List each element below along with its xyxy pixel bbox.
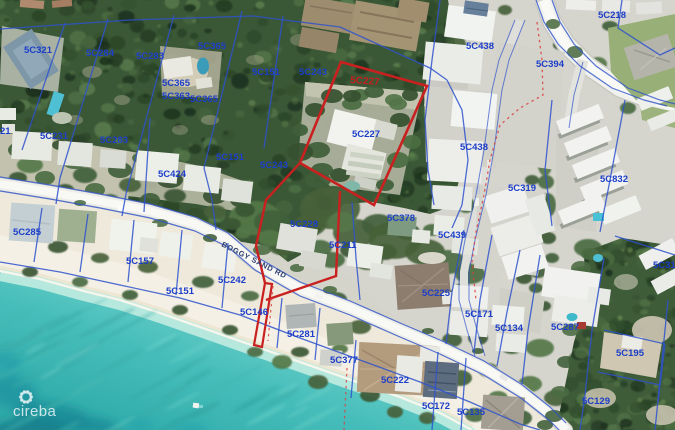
svg-text:5C283: 5C283	[136, 51, 164, 62]
svg-text:5C319: 5C319	[508, 183, 536, 194]
svg-text:5C311: 5C311	[653, 260, 675, 271]
svg-text:cireba: cireba	[13, 403, 57, 420]
svg-text:5C377: 5C377	[330, 355, 358, 366]
svg-text:5C242: 5C242	[218, 275, 246, 286]
svg-text:5C171: 5C171	[465, 309, 494, 320]
svg-text:5C365: 5C365	[198, 41, 227, 52]
svg-text:5C284: 5C284	[86, 48, 115, 59]
svg-text:5C157: 5C157	[126, 256, 154, 267]
svg-text:5C135: 5C135	[457, 407, 486, 418]
svg-text:5C365: 5C365	[162, 78, 191, 89]
svg-text:5C227: 5C227	[350, 75, 381, 88]
svg-text:5C151: 5C151	[252, 67, 281, 78]
svg-text:5C394: 5C394	[536, 59, 565, 70]
svg-text:5C832: 5C832	[600, 174, 628, 185]
svg-text:5C243: 5C243	[299, 67, 327, 78]
svg-text:5C231: 5C231	[40, 131, 69, 142]
svg-text:5C129: 5C129	[582, 396, 610, 407]
svg-text:5C321: 5C321	[24, 45, 53, 56]
svg-text:5C424: 5C424	[158, 169, 187, 180]
svg-text:5C365: 5C365	[190, 94, 219, 105]
svg-text:5C146: 5C146	[240, 307, 268, 318]
svg-text:5C281: 5C281	[287, 329, 316, 340]
svg-text:5C287: 5C287	[551, 322, 579, 333]
svg-text:5C285: 5C285	[13, 227, 42, 238]
svg-text:5C439: 5C439	[438, 230, 466, 241]
svg-text:5C134: 5C134	[495, 323, 524, 334]
svg-text:5C195: 5C195	[616, 348, 645, 359]
svg-text:5C243: 5C243	[260, 160, 288, 171]
svg-text:5C438: 5C438	[460, 142, 488, 153]
svg-text:5C151: 5C151	[216, 152, 245, 163]
svg-text:5C378: 5C378	[387, 213, 415, 224]
svg-text:5C283: 5C283	[100, 135, 128, 146]
svg-text:5C218: 5C218	[598, 10, 626, 21]
svg-text:5C228: 5C228	[290, 219, 318, 230]
svg-text:5C438: 5C438	[466, 41, 494, 52]
svg-text:5C227: 5C227	[352, 129, 380, 140]
svg-text:21: 21	[0, 126, 11, 137]
svg-text:5C211: 5C211	[329, 240, 357, 251]
svg-text:5C363: 5C363	[162, 91, 190, 102]
svg-text:5C222: 5C222	[381, 375, 409, 386]
svg-text:5C225: 5C225	[422, 288, 451, 299]
svg-text:5C151: 5C151	[166, 286, 195, 297]
svg-text:5C172: 5C172	[422, 401, 450, 412]
